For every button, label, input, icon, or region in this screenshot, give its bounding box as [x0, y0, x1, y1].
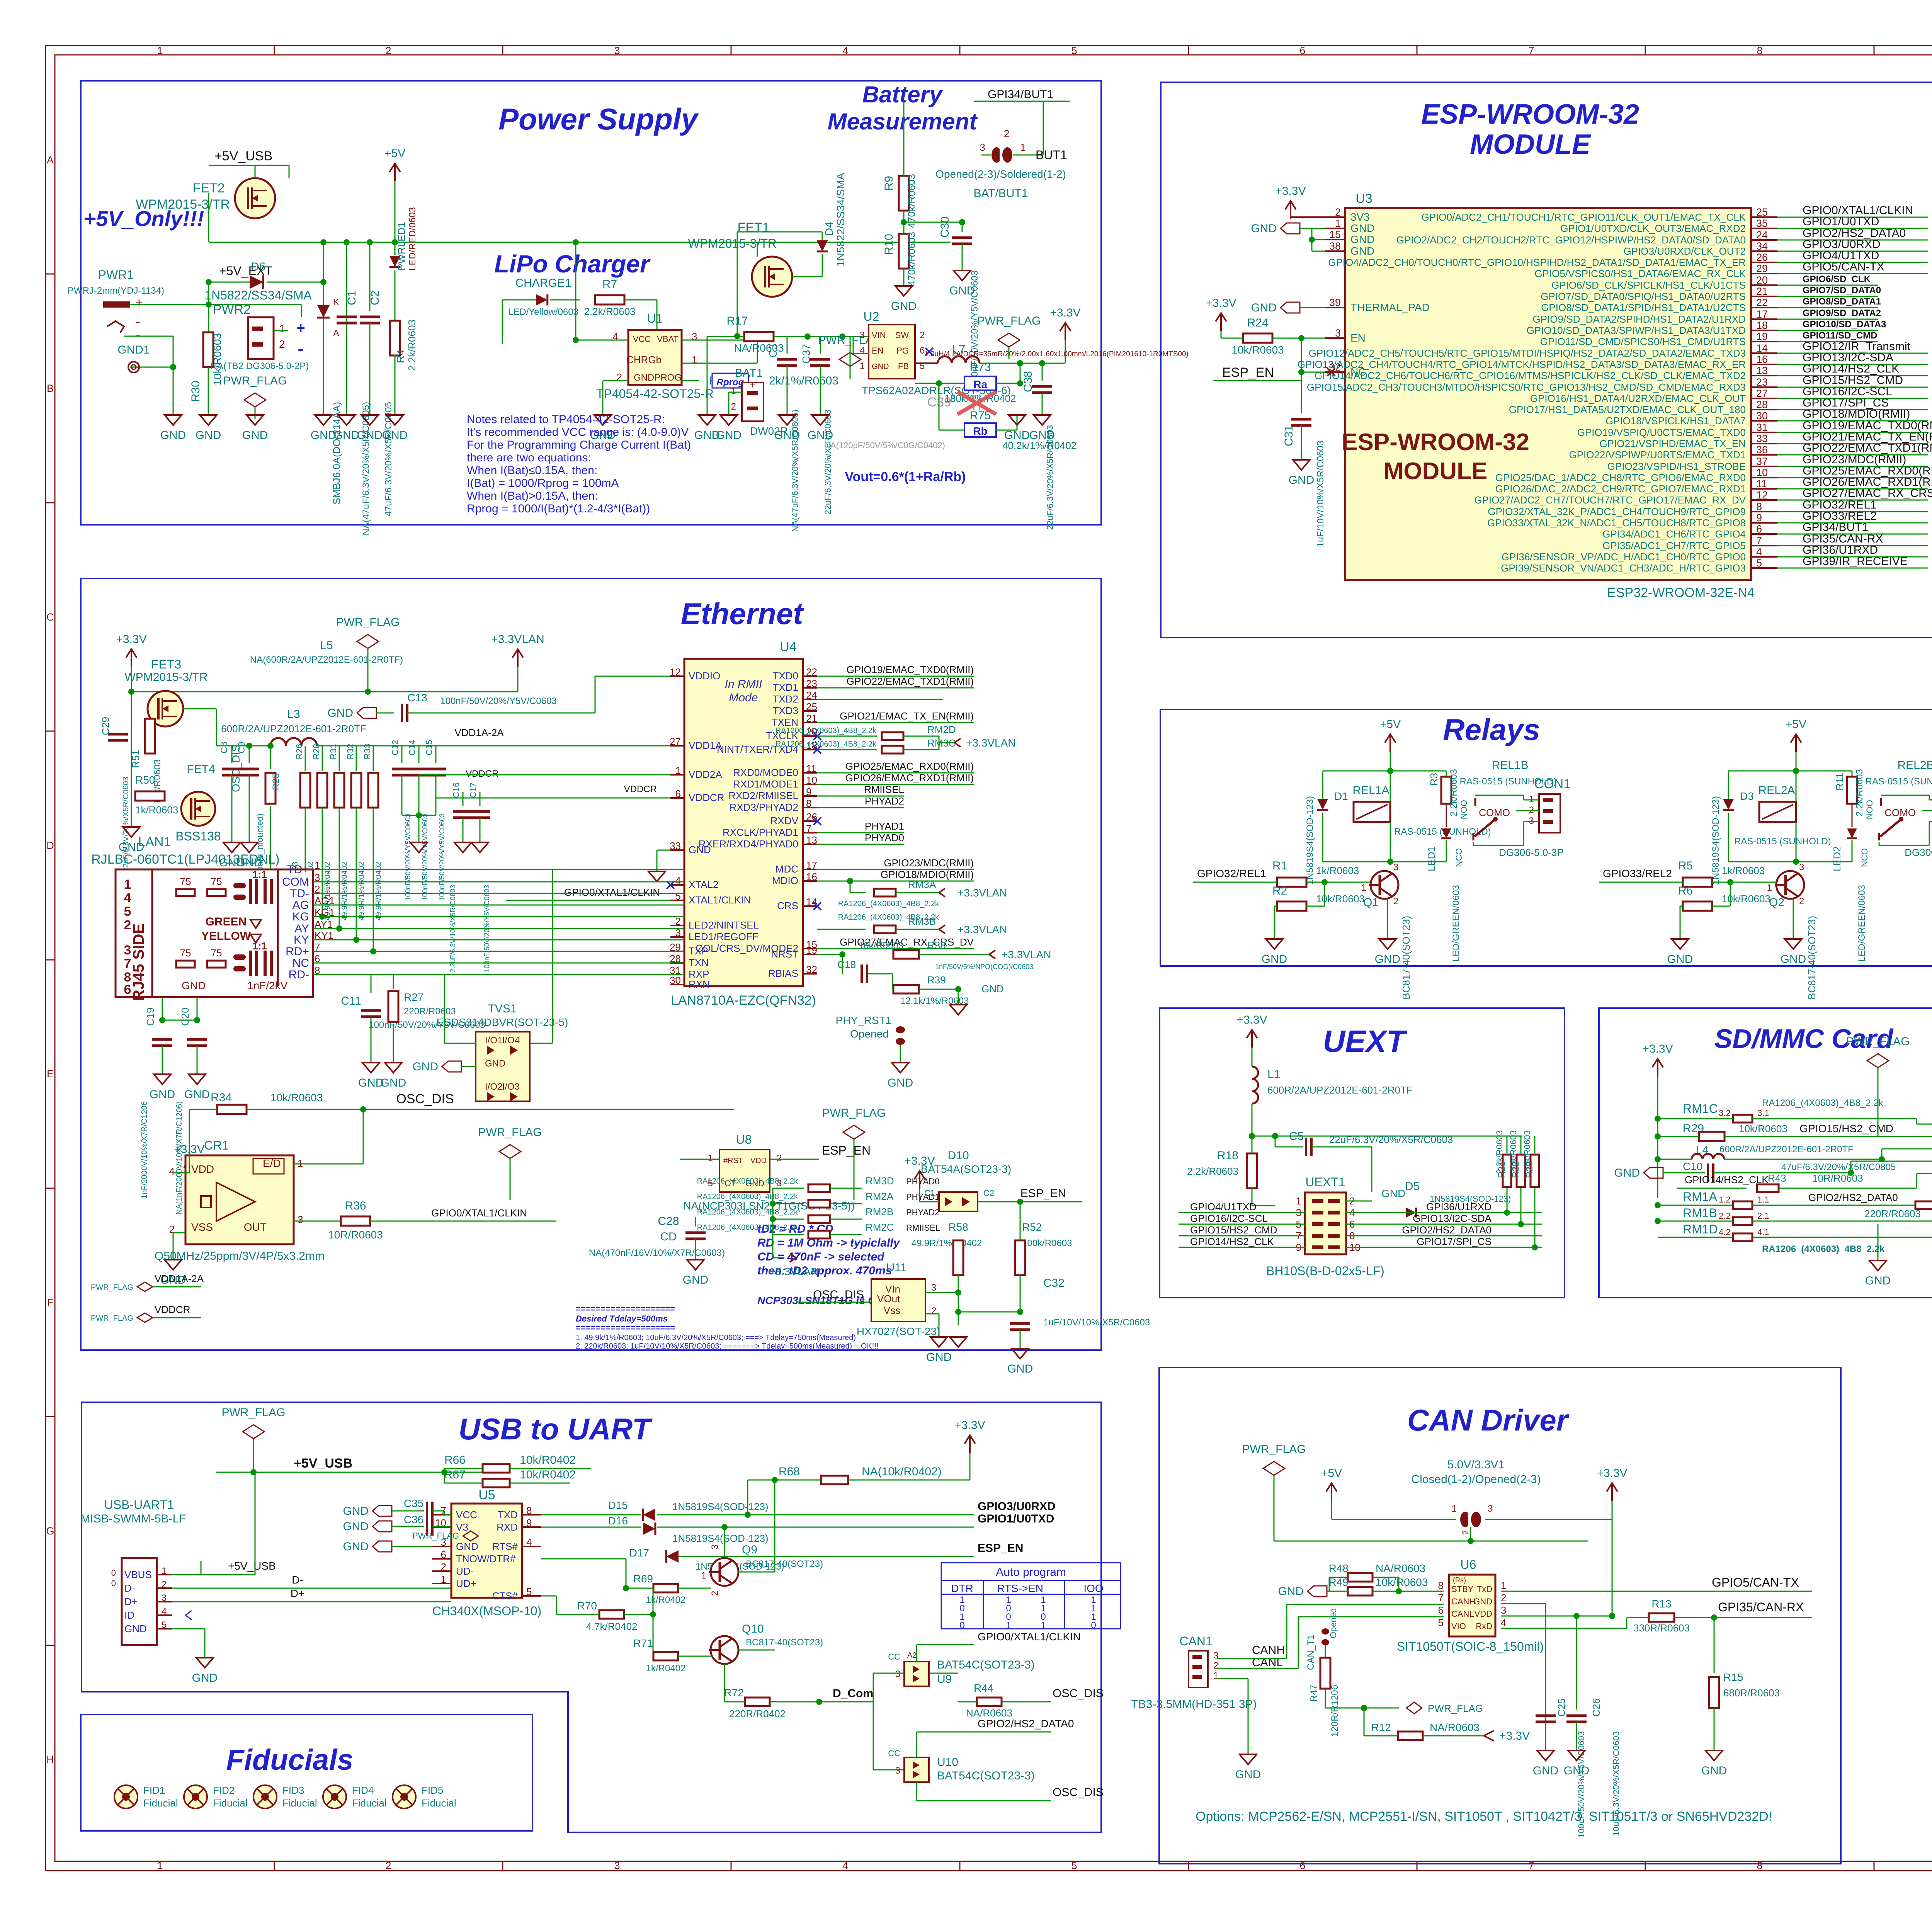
- svg-text:12: 12: [1756, 489, 1768, 501]
- svg-text:600R/2A/UPZ2012E-601-2R0TF: 600R/2A/UPZ2012E-601-2R0TF: [221, 723, 366, 735]
- svg-text:PWR_FLAG: PWR_FLAG: [1846, 1035, 1910, 1048]
- svg-text:GND: GND: [1251, 222, 1277, 235]
- svg-text:600R/2A/UPZ2012E-601-2R0TF: 600R/2A/UPZ2012E-601-2R0TF: [1719, 1144, 1854, 1155]
- svg-text:RA1206_(4X0603)_4B8_2.2k: RA1206_(4X0603)_4B8_2.2k: [838, 913, 939, 922]
- svg-text:TD-: TD-: [290, 887, 309, 900]
- svg-text:GPIO33/XTAL_32K_N/ADC1_CH5/TOU: GPIO33/XTAL_32K_N/ADC1_CH5/TOUCH8/RTC_GP…: [1487, 517, 1746, 529]
- svg-text:U10: U10: [937, 1756, 958, 1769]
- svg-text:FB: FB: [898, 361, 909, 371]
- svg-text:LiPo Charger: LiPo Charger: [494, 250, 651, 278]
- svg-text:R25: R25: [271, 773, 281, 790]
- svg-text:GPIO19/VSPIQ/U0CTS/EMAC_TXD0: GPIO19/VSPIQ/U0CTS/EMAC_TXD0: [1577, 427, 1746, 438]
- svg-text:10R/R0603: 10R/R0603: [328, 1229, 383, 1241]
- svg-text:ESP_EN: ESP_EN: [822, 1143, 871, 1157]
- svg-text:BAT54C(SOT23-3): BAT54C(SOT23-3): [937, 1769, 1035, 1782]
- svg-text:C2: C2: [983, 1188, 994, 1198]
- svg-text:R67: R67: [444, 1468, 466, 1481]
- svg-text:GND: GND: [343, 1540, 369, 1553]
- svg-text:GPIO27/EMAC_RX_CRS_DV: GPIO27/EMAC_RX_CRS_DV: [1803, 487, 1932, 500]
- svg-text:C26: C26: [1590, 1698, 1602, 1717]
- svg-text:NA/R0603: NA/R0603: [1376, 1562, 1425, 1574]
- svg-text:ESP_EN: ESP_EN: [1020, 1187, 1066, 1200]
- svg-text:VOut: VOut: [877, 1293, 900, 1305]
- svg-text:GND: GND: [456, 1541, 478, 1552]
- svg-text:1: 1: [1361, 883, 1366, 893]
- svg-text:GPIO23/MDC(RMII): GPIO23/MDC(RMII): [884, 857, 974, 869]
- svg-text:CC: CC: [888, 1652, 900, 1662]
- svg-text:220R/R0402: 220R/R0402: [729, 1708, 786, 1720]
- svg-text:GND: GND: [242, 429, 268, 442]
- svg-text:1: 1: [1296, 1195, 1301, 1207]
- svg-text:RMIISEL: RMIISEL: [864, 784, 904, 795]
- svg-text:DTR: DTR: [951, 1582, 973, 1594]
- svg-text:GPI39/SENSOR_VN/ADC1_CH3/ADC_H: GPI39/SENSOR_VN/ADC1_CH3/ADC_H/RTC_GPIO3: [1501, 562, 1746, 574]
- svg-text:RD-: RD-: [289, 968, 309, 981]
- svg-text:U9: U9: [937, 1673, 952, 1686]
- svg-text:(Rs): (Rs): [1453, 1576, 1466, 1584]
- svg-text:Opened: Opened: [1328, 1608, 1338, 1638]
- svg-text:C14: C14: [407, 740, 417, 755]
- svg-text:3: 3: [710, 1544, 720, 1550]
- svg-text:EN: EN: [872, 346, 884, 356]
- svg-text:3: 3: [1488, 1504, 1493, 1514]
- svg-text:220R/R0603: 220R/R0603: [404, 1006, 456, 1017]
- svg-text:13: 13: [1756, 365, 1768, 376]
- svg-text:GPIO27/ADC2_CH7/TOUCH7/RTC_GPI: GPIO27/ADC2_CH7/TOUCH7/RTC_GPIO17/EMAC_R…: [1474, 494, 1746, 506]
- svg-text:PWR_FLAG: PWR_FLAG: [977, 315, 1041, 327]
- svg-text:GPIO1/U0TXD/CLK_OUT3/EMAC_RXD2: GPIO1/U0TXD/CLK_OUT3/EMAC_RXD2: [1560, 223, 1746, 234]
- svg-text:3: 3: [1213, 1650, 1218, 1661]
- svg-text:GND: GND: [160, 429, 186, 442]
- svg-text:R24: R24: [1247, 316, 1268, 329]
- svg-text:C30: C30: [939, 216, 951, 238]
- svg-text:GPIO0/XTAL1/CLKIN: GPIO0/XTAL1/CLKIN: [431, 1207, 527, 1219]
- svg-text:RA1206_(4X0603)_4B8_2.2k: RA1206_(4X0603)_4B8_2.2k: [1762, 1098, 1884, 1108]
- svg-text:2.2k/R0603: 2.2k/R0603: [1495, 1130, 1504, 1174]
- svg-text:TXN: TXN: [689, 957, 709, 968]
- svg-text:It's recommended VCC range is:: It's recommended VCC range is: (4.0-9.0)…: [467, 426, 689, 439]
- svg-text:AG: AG: [293, 899, 309, 912]
- svg-text:RAS-0515 (SUNHOLD): RAS-0515 (SUNHOLD): [1866, 776, 1932, 787]
- svg-text:Fiducial: Fiducial: [143, 1797, 178, 1809]
- svg-text:4: 4: [169, 1165, 175, 1177]
- svg-text:OSC_DIS: OSC_DIS: [1053, 1687, 1104, 1700]
- svg-text:GND: GND: [1667, 953, 1693, 966]
- svg-text:GND: GND: [358, 1077, 384, 1089]
- svg-text:I/O3: I/O3: [502, 1082, 520, 1092]
- svg-text:VCC: VCC: [456, 1509, 477, 1521]
- svg-text:GPIO11/SD_CMD: GPIO11/SD_CMD: [1803, 330, 1877, 341]
- svg-text:GPIO32/REL1: GPIO32/REL1: [1197, 867, 1266, 879]
- svg-text:OSC_DIS: OSC_DIS: [396, 1092, 454, 1106]
- svg-text:BC817-40(SOT23): BC817-40(SOT23): [1806, 916, 1818, 1000]
- svg-text:R9: R9: [883, 176, 895, 191]
- svg-text:TVS1: TVS1: [488, 1002, 517, 1015]
- svg-text:4: 4: [1756, 546, 1762, 558]
- svg-text:EN: EN: [1350, 332, 1366, 344]
- svg-text:100k/R0603: 100k/R0603: [1022, 1238, 1072, 1249]
- svg-text:RJ45 SIDE: RJ45 SIDE: [130, 924, 147, 1001]
- svg-text:GPIO19/EMAC_TXD0(RMII): GPIO19/EMAC_TXD0(RMII): [847, 664, 974, 675]
- svg-text:FID5: FID5: [422, 1784, 443, 1796]
- svg-text:1:1: 1:1: [252, 869, 267, 880]
- svg-text:+: +: [135, 296, 143, 310]
- svg-text:1.0uH/4.2A/DCR=35mR/20%/2.00x1: 1.0uH/4.2A/DCR=35mR/20%/2.00x1.60x1.00mm…: [924, 350, 1189, 358]
- svg-text:TXD0: TXD0: [773, 670, 798, 682]
- svg-text:UEXT: UEXT: [1323, 1024, 1407, 1058]
- svg-text:Fiducial: Fiducial: [282, 1797, 317, 1809]
- svg-text:OUT: OUT: [244, 1221, 267, 1233]
- svg-text:C28: C28: [658, 1215, 679, 1228]
- svg-text:R7: R7: [602, 278, 617, 291]
- svg-text:TXD: TXD: [498, 1509, 518, 1521]
- svg-text:Rprog = 1000/I(Bat)*(1.2-4/3*I: Rprog = 1000/I(Bat)*(1.2-4/3*I(Bat)): [467, 502, 650, 515]
- svg-text:U3: U3: [1355, 191, 1372, 206]
- svg-text:R1: R1: [1272, 859, 1287, 872]
- svg-text:R71: R71: [633, 1637, 653, 1649]
- svg-text:75: 75: [180, 947, 191, 959]
- svg-text:C32: C32: [1043, 1277, 1065, 1289]
- svg-text:NA/R0603: NA/R0603: [966, 1707, 1012, 1719]
- svg-text:YELLOW: YELLOW: [201, 930, 251, 942]
- svg-text:+5V_EXT: +5V_EXT: [219, 264, 272, 278]
- svg-text:H: H: [46, 1754, 54, 1765]
- svg-text:GPIO4/U1TXD: GPIO4/U1TXD: [1190, 1201, 1257, 1213]
- svg-text:Battery: Battery: [862, 82, 943, 107]
- svg-text:GPIO3/U0RXD/CLK_OUT2: GPIO3/U0RXD/CLK_OUT2: [1624, 245, 1746, 257]
- svg-text:GPIO25/DAC_1/ADC2_CH8/RTC_GPIO: GPIO25/DAC_1/ADC2_CH8/RTC_GPIO6/EMAC_RXD…: [1495, 472, 1746, 483]
- svg-text:CAN Driver: CAN Driver: [1407, 1403, 1570, 1437]
- svg-text:RM1B: RM1B: [1683, 1206, 1717, 1220]
- svg-text:D-: D-: [124, 1582, 135, 1594]
- svg-text:17: 17: [1756, 308, 1768, 320]
- svg-text:GND: GND: [381, 1077, 406, 1089]
- svg-text:+: +: [750, 379, 755, 391]
- svg-text:18: 18: [1756, 320, 1768, 331]
- svg-text:2: 2: [920, 330, 925, 340]
- svg-text:R39: R39: [927, 974, 946, 986]
- svg-text:OSC_DIS: OSC_DIS: [1053, 1786, 1104, 1799]
- svg-text:C1: C1: [345, 291, 358, 305]
- svg-text:GND: GND: [716, 429, 742, 442]
- svg-text:C10: C10: [1683, 1160, 1702, 1172]
- svg-text:Auto program: Auto program: [996, 1566, 1066, 1579]
- svg-text:RM3A: RM3A: [908, 879, 936, 890]
- svg-text:RM2A: RM2A: [866, 1191, 894, 1202]
- svg-text:CR1: CR1: [204, 1138, 229, 1152]
- svg-text:GND: GND: [926, 1351, 952, 1364]
- svg-text:3: 3: [931, 1283, 936, 1293]
- svg-text:REL2A: REL2A: [1758, 784, 1795, 797]
- svg-text:COMO: COMO: [1884, 807, 1916, 818]
- svg-text:#RST: #RST: [723, 1157, 743, 1165]
- svg-text:R70: R70: [577, 1600, 597, 1612]
- svg-text:CTS#: CTS#: [492, 1590, 518, 1602]
- svg-text:GND: GND: [485, 1058, 505, 1069]
- svg-text:PHY_RST1: PHY_RST1: [836, 1014, 892, 1026]
- svg-text:GND: GND: [1350, 222, 1374, 234]
- svg-text:R44: R44: [974, 1682, 993, 1694]
- svg-text:Fiducial: Fiducial: [213, 1797, 248, 1809]
- svg-text:33: 33: [1756, 433, 1768, 444]
- svg-text:6: 6: [1438, 1604, 1444, 1616]
- svg-text:KG: KG: [293, 910, 309, 923]
- svg-text:VDD2A: VDD2A: [689, 769, 722, 780]
- svg-text:RXD1/MODE1: RXD1/MODE1: [733, 778, 798, 790]
- svg-text:D4: D4: [823, 222, 835, 236]
- svg-text:10k/R0603: 10k/R0603: [1316, 893, 1365, 905]
- svg-text:5: 5: [1756, 557, 1762, 569]
- svg-text:3.1: 3.1: [1757, 1108, 1769, 1118]
- svg-text:R5: R5: [1678, 859, 1693, 872]
- svg-text:+3.3VLAN: +3.3VLAN: [966, 737, 1015, 749]
- svg-text:R27: R27: [404, 991, 423, 1003]
- svg-text:F: F: [47, 1297, 54, 1308]
- svg-text:PG: PG: [896, 346, 909, 356]
- svg-text:GND: GND: [1262, 953, 1287, 966]
- svg-text:RD+: RD+: [286, 945, 309, 958]
- svg-text:2.2k/R0603: 2.2k/R0603: [584, 306, 636, 317]
- svg-text:GPI39/IR_RECEIVE: GPI39/IR_RECEIVE: [1803, 555, 1908, 568]
- svg-text:GPIO0/ADC2_CH1/TOUCH1/RTC_GPIO: GPIO0/ADC2_CH1/TOUCH1/RTC_GPIO11/CLK_OUT…: [1422, 211, 1746, 223]
- svg-text:C18: C18: [837, 959, 856, 970]
- svg-text:MDIO: MDIO: [772, 875, 798, 886]
- svg-text:GPIO22/VSPIWP/U0RTS/EMAC_TXD1: GPIO22/VSPIWP/U0RTS/EMAC_TXD1: [1569, 449, 1746, 461]
- svg-text:+5V: +5V: [1380, 718, 1401, 731]
- svg-text:1nF/2kV: 1nF/2kV: [247, 980, 288, 992]
- svg-text:GPIO16/HS1_DATA4/U2RXD/EMAC_CL: GPIO16/HS1_DATA4/U2RXD/EMAC_CLK_OUT: [1530, 393, 1746, 404]
- svg-text:1k/R0603: 1k/R0603: [135, 804, 178, 816]
- svg-text:GPIO18/MDIO(RMII): GPIO18/MDIO(RMII): [1803, 408, 1910, 420]
- svg-text:RM1C: RM1C: [1683, 1102, 1718, 1116]
- svg-text:R58: R58: [948, 1221, 968, 1233]
- svg-text:1nF/2000V/10%/X7R/C1206: 1nF/2000V/10%/X7R/C1206: [140, 1101, 149, 1199]
- svg-text:TXD1: TXD1: [773, 682, 798, 693]
- svg-text:LED2/NINTSEL: LED2/NINTSEL: [689, 919, 759, 931]
- svg-text:R28: R28: [311, 744, 321, 759]
- svg-text:5: 5: [1071, 45, 1077, 56]
- svg-text:GPI34/BUT1: GPI34/BUT1: [1803, 521, 1868, 534]
- svg-text:PWR2: PWR2: [213, 302, 251, 317]
- svg-text:RM1D: RM1D: [1683, 1222, 1718, 1236]
- svg-text:R32: R32: [345, 744, 355, 759]
- svg-text:GPIO5/VSPICS0/HS1_DATA6/EMAC_R: GPIO5/VSPICS0/HS1_DATA6/EMAC_RX_CLK: [1534, 268, 1746, 279]
- svg-text:GPI34/BUT1: GPI34/BUT1: [988, 88, 1053, 101]
- svg-text:GND: GND: [1701, 1764, 1727, 1777]
- svg-text:RMIISEL: RMIISEL: [906, 1223, 940, 1233]
- svg-text:G: G: [46, 1525, 54, 1537]
- svg-text:LED/GREEN/0603: LED/GREEN/0603: [1857, 885, 1867, 962]
- svg-text:10k/R0603: 10k/R0603: [1522, 1130, 1532, 1171]
- svg-text:GPIO6/SD_CLK: GPIO6/SD_CLK: [1803, 274, 1871, 284]
- svg-text:FID1: FID1: [143, 1784, 165, 1796]
- svg-text:BAT1: BAT1: [735, 367, 763, 379]
- svg-text:D-: D-: [292, 1574, 303, 1586]
- svg-text:GPI36/U1RXD: GPI36/U1RXD: [1426, 1201, 1492, 1213]
- svg-text:1uF/10V/10%/X5R/C0603: 1uF/10V/10%/X5R/C0603: [1043, 1317, 1150, 1328]
- svg-text:+5V_USB: +5V_USB: [294, 1456, 352, 1471]
- svg-text:GND1: GND1: [117, 344, 150, 356]
- svg-text:GND: GND: [774, 429, 800, 442]
- svg-text:LAN8710A-EZC(QFN32): LAN8710A-EZC(QFN32): [671, 993, 816, 1008]
- svg-text:R49: R49: [1329, 1576, 1349, 1588]
- svg-text:+3.3V: +3.3V: [1597, 1467, 1627, 1480]
- svg-text:1: 1: [708, 1153, 713, 1163]
- svg-text:RA1206_(4X0603)_4B8_2.2k: RA1206_(4X0603)_4B8_2.2k: [776, 740, 877, 748]
- svg-text:CD: CD: [660, 1230, 677, 1243]
- svg-text:RA1206_(4X0603)_4B8_2.2k: RA1206_(4X0603)_4B8_2.2k: [697, 1177, 798, 1186]
- svg-text:ESP32-WROOM-32E-N4: ESP32-WROOM-32E-N4: [1607, 585, 1755, 600]
- svg-text:PHYAD1: PHYAD1: [865, 820, 904, 832]
- svg-text:3: 3: [614, 45, 620, 56]
- svg-text:1N5819S4(SOD-123): 1N5819S4(SOD-123): [672, 1533, 769, 1544]
- svg-text:10: 10: [1756, 467, 1768, 478]
- svg-text:31: 31: [1756, 422, 1768, 433]
- svg-text:GND: GND: [1007, 1362, 1033, 1375]
- svg-text:-: -: [135, 327, 140, 344]
- svg-text:49.9R/1%/R0402: 49.9R/1%/R0402: [340, 862, 349, 920]
- svg-text:R72: R72: [724, 1687, 744, 1699]
- svg-text:C9: C9: [236, 742, 247, 754]
- svg-text:VDD1A-2A: VDD1A-2A: [454, 727, 504, 738]
- svg-text:GND: GND: [192, 1672, 218, 1684]
- svg-text:R6: R6: [1678, 885, 1693, 897]
- svg-text:E/D: E/D: [263, 1157, 281, 1169]
- svg-text:TxD: TxD: [1477, 1584, 1492, 1594]
- svg-text:PWR_FLAG: PWR_FLAG: [1242, 1443, 1306, 1456]
- svg-text:GPIO18/VSPICLK/HS1_DATA7: GPIO18/VSPICLK/HS1_DATA7: [1605, 415, 1746, 427]
- svg-text:R13: R13: [1651, 1598, 1671, 1610]
- svg-text:C5: C5: [1289, 1130, 1304, 1143]
- svg-text:RA1206_(4X0603)_4B8_2.2k: RA1206_(4X0603)_4B8_2.2k: [697, 1192, 798, 1201]
- svg-text:GPIO10/SD_DATA3/SPIWP/HS1_DATA: GPIO10/SD_DATA3/SPIWP/HS1_DATA3/U1TXD: [1527, 325, 1746, 336]
- svg-text:Closed(1-2)/Opened(2-3): Closed(1-2)/Opened(2-3): [1411, 1473, 1541, 1486]
- svg-text:C35: C35: [404, 1497, 423, 1509]
- svg-text:GPIO11/SD_CMD/SPICS0/HS1_CMD/U: GPIO11/SD_CMD/SPICS0/HS1_CMD/U1RTS: [1540, 336, 1746, 347]
- svg-text:R34: R34: [211, 1091, 232, 1104]
- svg-text:GND: GND: [1781, 953, 1806, 966]
- svg-text:100nF/50V/20%/Y5V/C0603: 100nF/50V/20%/Y5V/C0603: [440, 696, 557, 706]
- svg-text:GPIO13/I2C-SDA: GPIO13/I2C-SDA: [1413, 1213, 1492, 1224]
- svg-text:UD+: UD+: [456, 1578, 476, 1589]
- svg-text:5.0V/3.3V1: 5.0V/3.3V1: [1447, 1458, 1505, 1471]
- svg-text:IOO: IOO: [1083, 1582, 1103, 1594]
- svg-text:GPIO21/EMAC_TX_EN(RMII): GPIO21/EMAC_TX_EN(RMII): [840, 710, 974, 722]
- svg-text:MODULE: MODULE: [1470, 129, 1591, 160]
- svg-text:GND: GND: [1235, 1768, 1261, 1781]
- svg-text:Relays: Relays: [1443, 713, 1540, 747]
- svg-text:1: 1: [1767, 883, 1772, 893]
- svg-text:21: 21: [1756, 286, 1768, 297]
- svg-text:3: 3: [298, 1214, 303, 1225]
- svg-text:SW: SW: [895, 330, 909, 340]
- svg-text:GPIO10/SD_DATA3: GPIO10/SD_DATA3: [1803, 319, 1886, 330]
- svg-text:UEXT1: UEXT1: [1305, 1175, 1345, 1189]
- svg-text:+3.3VLAN: +3.3VLAN: [957, 887, 1007, 899]
- svg-text:R66: R66: [444, 1454, 466, 1466]
- svg-text:NC: NC: [293, 957, 309, 970]
- svg-text:R17: R17: [726, 315, 748, 327]
- svg-text:75: 75: [211, 876, 222, 887]
- svg-text:R26: R26: [294, 744, 304, 759]
- svg-text:USB-UART1: USB-UART1: [104, 1498, 174, 1512]
- svg-text:1: 1: [1041, 1620, 1046, 1631]
- svg-text:RM2C: RM2C: [866, 1221, 894, 1233]
- svg-text:VDD1A-2A: VDD1A-2A: [155, 1273, 204, 1284]
- svg-text:L1: L1: [1267, 1068, 1280, 1081]
- svg-text:+3.3V: +3.3V: [1275, 185, 1306, 197]
- svg-text:TXD2: TXD2: [773, 693, 798, 705]
- svg-text:R18: R18: [1217, 1149, 1238, 1162]
- svg-text:NOO: NOO: [1865, 800, 1874, 819]
- svg-text:2: 2: [1393, 896, 1398, 907]
- svg-text:RA1206_(4X0603)_4B8_2.2k: RA1206_(4X0603)_4B8_2.2k: [838, 900, 939, 908]
- svg-text:15: 15: [1329, 229, 1341, 240]
- svg-text:C12: C12: [390, 740, 400, 755]
- svg-text:GND: GND: [888, 1077, 913, 1089]
- svg-text:R33: R33: [362, 744, 372, 759]
- svg-text:Q1: Q1: [1363, 896, 1379, 909]
- svg-text:D+: D+: [291, 1587, 305, 1599]
- svg-text:C15: C15: [424, 740, 434, 755]
- svg-text:PWR_FLAG: PWR_FLAG: [223, 374, 287, 387]
- svg-text:49.9R/1%/R0402: 49.9R/1%/R0402: [374, 862, 383, 920]
- svg-text:Vout=0.6*(1+Ra/Rb): Vout=0.6*(1+Ra/Rb): [845, 469, 966, 484]
- svg-text:C38: C38: [1022, 371, 1034, 392]
- svg-text:When I(Bat)>0.15A, then:: When I(Bat)>0.15A, then:: [467, 490, 598, 502]
- svg-text:29: 29: [1756, 263, 1768, 274]
- svg-text:1: 1: [1335, 218, 1341, 229]
- svg-text:CANH: CANH: [1451, 1597, 1475, 1606]
- svg-text:R2: R2: [1272, 885, 1287, 897]
- svg-text:+3.3VLAN: +3.3VLAN: [1002, 949, 1051, 961]
- svg-text:FET4: FET4: [187, 763, 215, 776]
- svg-text:0: 0: [111, 1568, 116, 1578]
- svg-text:10k/R0603: 10k/R0603: [1739, 1123, 1787, 1135]
- svg-text:10k/R0603: 10k/R0603: [1722, 893, 1770, 905]
- svg-text:CAN_T1: CAN_T1: [1306, 1635, 1316, 1670]
- svg-text:THERMAL_PAD: THERMAL_PAD: [1350, 301, 1430, 313]
- svg-text:22uF/6.3V/20%/X5R/C0603: 22uF/6.3V/20%/X5R/C0603: [823, 410, 833, 515]
- svg-text:PWR_FLAG: PWR_FLAG: [91, 1314, 133, 1323]
- svg-text:NC: NC: [1350, 366, 1366, 378]
- svg-text:1N5822/SS34/SMA: 1N5822/SS34/SMA: [835, 173, 847, 267]
- svg-text:GND: GND: [1350, 233, 1374, 245]
- svg-text:3V3: 3V3: [1350, 211, 1370, 223]
- svg-text:R47: R47: [1309, 1685, 1319, 1702]
- svg-text:D17: D17: [629, 1547, 649, 1559]
- svg-text:100nF/50V/20%/Y5V/C0603: 100nF/50V/20%/Y5V/C0603: [438, 813, 446, 901]
- svg-text:PWR_FLAG: PWR_FLAG: [1428, 1703, 1483, 1714]
- svg-text:GND: GND: [1278, 1585, 1304, 1598]
- svg-text:37: 37: [1756, 456, 1768, 467]
- svg-text:10k/R0603: 10k/R0603: [270, 1092, 323, 1104]
- svg-text:FID4: FID4: [352, 1784, 374, 1796]
- svg-text:BAT54C(SOT23-3): BAT54C(SOT23-3): [937, 1658, 1035, 1671]
- svg-text:1: 1: [124, 877, 131, 892]
- svg-text:U11: U11: [886, 1261, 907, 1274]
- svg-text:XTAL2: XTAL2: [689, 879, 719, 890]
- svg-text:+: +: [296, 320, 305, 337]
- svg-text:FET1: FET1: [737, 220, 769, 235]
- svg-text:GND: GND: [1564, 1764, 1590, 1777]
- svg-text:Notes related to TP4054-42-SOT: Notes related to TP4054-42-SOT25-R:: [467, 413, 665, 426]
- svg-text:34: 34: [1756, 240, 1768, 252]
- svg-text:CAN1: CAN1: [1179, 1634, 1212, 1648]
- svg-text:A2: A2: [907, 1651, 917, 1660]
- svg-text:RTS->EN: RTS->EN: [997, 1582, 1043, 1594]
- svg-text:+5V: +5V: [1786, 718, 1806, 731]
